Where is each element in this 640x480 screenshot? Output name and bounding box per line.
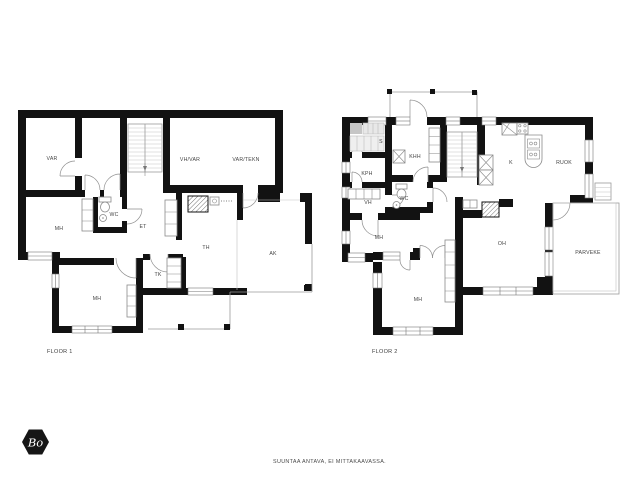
room-label-th: TH (202, 245, 209, 251)
room-label-vhvar: VH/VAR (180, 157, 200, 163)
room-label-kph: KPH (361, 171, 372, 177)
floorplan-canvas: VAR VH/VAR VAR/TEKN MH WC ET TH AK TK MH… (0, 0, 640, 480)
room-label-mh-2: MH (93, 296, 102, 302)
room-label-wc-2: WC (399, 196, 408, 202)
floor2-stairs (447, 132, 477, 177)
floor2-title: FLOOR 2 (372, 349, 398, 355)
floor1-title: FLOOR 1 (47, 349, 73, 355)
room-label-mh-1: MH (55, 226, 64, 232)
floor1-plan: VAR VH/VAR VAR/TEKN MH WC ET TH AK TK MH… (18, 110, 312, 355)
room-label-ak: AK (269, 251, 277, 257)
floor2-plan: S KHH KPH VH WC K RUOK MH OH PARVEKE MH … (342, 89, 619, 355)
room-label-k: K (509, 160, 513, 166)
room-label-ruok: RUOK (556, 160, 572, 166)
logo-text: Bo (27, 436, 43, 450)
room-label-vh: VH (364, 200, 372, 206)
floor2-porch-outline (387, 89, 477, 117)
fireplace-icon-2 (482, 202, 499, 217)
room-label-wc-1: WC (109, 212, 118, 218)
disclaimer-text: SUUNTAA ANTAVA, EI MITTAKAAVASSA. (273, 459, 386, 465)
room-label-mh-3: MH (375, 235, 384, 241)
room-label-parveke: PARVEKE (575, 250, 601, 256)
room-label-s: S (379, 139, 383, 145)
room-label-mh-4: MH (414, 297, 423, 303)
floorplan-page: VAR VH/VAR VAR/TEKN MH WC ET TH AK TK MH… (0, 0, 640, 480)
room-label-var: VAR (47, 156, 58, 162)
room-label-tk: TK (154, 272, 161, 278)
logo-hexagon: Bo (22, 430, 49, 455)
floor1-stairs (128, 124, 162, 176)
room-label-et: ET (139, 224, 147, 230)
sauna-benches (350, 123, 384, 151)
floor1-fixtures (82, 196, 233, 317)
room-label-khh: KHH (409, 154, 421, 160)
room-label-oh: OH (498, 241, 506, 247)
fireplace-icon (188, 196, 208, 212)
room-label-vartekn: VAR/TEKN (232, 157, 259, 163)
